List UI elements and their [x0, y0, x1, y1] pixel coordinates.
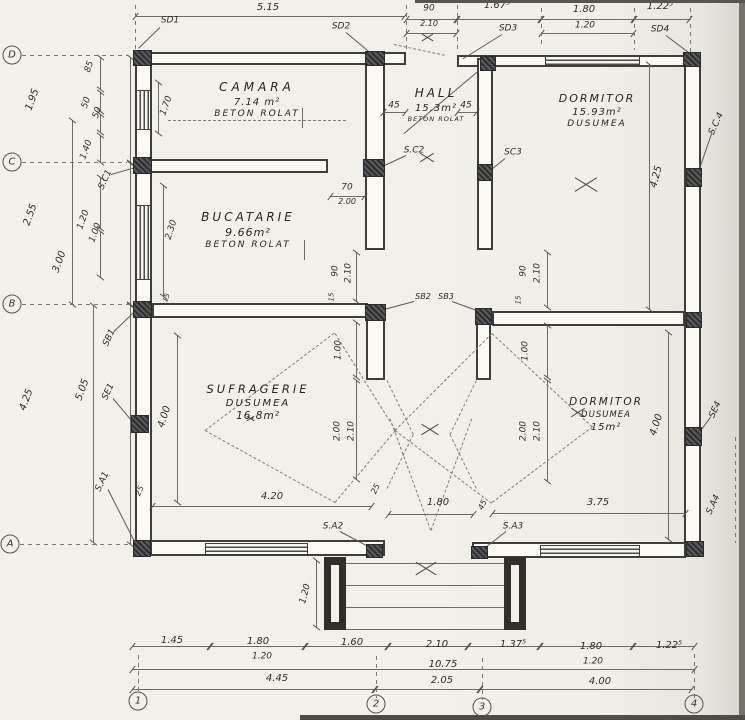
room-label-line: BETON ROLAT — [408, 115, 465, 123]
dim-2-00-buc: 2.00 — [338, 198, 356, 206]
room-label-line: HALL — [408, 86, 465, 102]
room-label-line: SUFRAGERIE — [206, 382, 309, 397]
room-label-line: 15.93m² — [559, 106, 636, 119]
dim-1-40: 1.40 — [79, 139, 94, 161]
wall-camara-bucatarie — [150, 159, 328, 173]
floor-plan-drawing: 5.15902.101.67⁵SD31.801.201.22⁵SD4SD1SD2… — [0, 0, 745, 720]
column-se4 — [685, 427, 702, 446]
room-label-line: DORMITOR — [559, 92, 636, 106]
dim-1-80-b1: 1.80 — [247, 637, 269, 647]
extension-line — [541, 8, 542, 48]
column-sd2 — [365, 51, 385, 66]
dim-4-20: 4.20 — [261, 492, 283, 502]
dim-2-00-suf: 2.00 — [334, 421, 343, 441]
room-label-sufragerie: SUFRAGERIEDUSUMEA16.8m² — [206, 382, 309, 424]
swing-dormitor — [395, 333, 493, 431]
dim-1-20-left: 1.20 — [76, 209, 91, 231]
scan-edge-right — [739, 0, 745, 720]
extension-line — [135, 5, 136, 49]
dim-2-10-hall-r: 2.10 — [534, 263, 543, 283]
swing-stub-left — [387, 380, 414, 434]
label-sd2: SD2 — [332, 23, 350, 32]
dim-line — [316, 560, 317, 628]
scan-edge-top — [415, 0, 745, 3]
x-mark-center — [420, 419, 440, 439]
dim-1-20-b2: 1.20 — [583, 658, 603, 667]
column-sb3 — [475, 308, 492, 325]
dim-line — [163, 185, 164, 297]
grid-marker-D: D — [3, 46, 22, 65]
label-sa3: S.A3 — [503, 523, 523, 532]
dim-2-10-hall-l: 2.10 — [345, 263, 354, 283]
stroke-bucatarie-note — [304, 240, 305, 260]
window-dormitor-top — [545, 56, 640, 66]
dim-90-hall-l: 90 — [332, 265, 341, 276]
grid-line-c — [22, 162, 127, 163]
dim-1-20-top: 1.20 — [575, 22, 595, 31]
grid-line-d — [22, 55, 127, 56]
dim-2-00-dorm: 2.00 — [520, 421, 529, 441]
dim-50-b: 50 — [92, 106, 104, 120]
label-sd3: SD3 — [499, 25, 517, 34]
dim-1-22-5-top: 1.22⁵ — [647, 2, 673, 12]
dim-line — [93, 305, 94, 543]
dim-2-55: 2.55 — [22, 203, 39, 227]
dim-70: 70 — [341, 184, 352, 193]
room-label-line: 16.8m² — [206, 410, 309, 424]
grid-marker-B: B — [3, 295, 22, 314]
dim-line — [100, 57, 101, 90]
grid-line-3 — [482, 658, 483, 700]
dim-line — [132, 669, 695, 670]
dim-3-00: 3.00 — [51, 250, 68, 274]
grid-marker-1: 1 — [129, 692, 148, 711]
label-sc1: S.C1 — [98, 169, 115, 191]
dim-3-75: 3.75 — [587, 498, 609, 508]
window-bucatarie-left — [136, 205, 151, 280]
porch-pillar-left-slot — [331, 565, 339, 622]
wall-right — [684, 55, 701, 556]
column-sc1 — [133, 157, 152, 174]
dim-1-00-hall-l: 1.00 — [335, 340, 344, 360]
column-sc3 — [477, 164, 493, 181]
swing-stub-right — [450, 380, 477, 434]
dim-4-25-left: 4.25 — [18, 388, 35, 412]
leader-line-sc2 — [382, 155, 406, 167]
dim-1-45: 1.45 — [161, 636, 183, 646]
dim-line — [634, 19, 690, 20]
dim-1-70: 1.70 — [159, 95, 174, 117]
wall-hall-right — [477, 58, 493, 250]
leader-line-sb2 — [383, 301, 414, 310]
dim-line — [457, 19, 541, 20]
dim-15-bwall: 15 — [162, 293, 172, 304]
column-sb4 — [686, 312, 702, 328]
swing-sufragerie — [335, 430, 396, 503]
dim-line — [356, 252, 357, 302]
label-sa2: S.A2 — [323, 523, 343, 532]
room-label-dormitor-1: DORMITOR15.93m²DUSUMEA — [559, 92, 636, 131]
dim-50-a: 50 — [81, 96, 93, 110]
dim-line — [668, 332, 669, 540]
label-sd1: SD1 — [161, 17, 179, 26]
grid-line-1 — [138, 655, 139, 693]
room-label-camara: CAMARA7.14 m²BETON ROLAT — [214, 80, 299, 120]
stroke-camara-note — [302, 108, 303, 128]
dim-1-00-hall-r: 1.00 — [522, 341, 531, 361]
dim-line — [100, 135, 101, 163]
column-sc4 — [686, 168, 702, 187]
room-label-line: 7.14 m² — [214, 96, 299, 109]
grid-marker-2: 2 — [367, 695, 386, 714]
dim-line — [541, 33, 634, 34]
dim-2-10-dorm: 2.10 — [534, 421, 543, 441]
grid-line-b — [22, 304, 132, 305]
column-sd3 — [480, 56, 496, 71]
dim-2-30: 2.30 — [165, 219, 180, 241]
dim-2-05: 2.05 — [431, 676, 453, 686]
dim-2-10-suf: 2.10 — [348, 421, 357, 441]
leader-line-sd1 — [138, 27, 160, 49]
dim-line — [130, 57, 131, 163]
column-sb1 — [133, 301, 152, 318]
dim-line — [547, 380, 548, 482]
label-sd4: SD4 — [651, 26, 669, 35]
room-label-line: BUCATARIE — [201, 210, 295, 226]
dim-line — [132, 646, 210, 647]
dim-4-00-dorm: 4.00 — [649, 413, 665, 437]
grid-marker-A: A — [1, 535, 20, 554]
room-label-line: 15.3m² — [408, 102, 465, 115]
dim-line — [492, 513, 686, 514]
extension-line — [406, 5, 407, 50]
grid-marker-C: C — [3, 153, 22, 172]
extension-line — [457, 5, 458, 53]
extension-line — [634, 8, 635, 50]
grid-line-a — [20, 544, 132, 545]
dim-5-15: 5.15 — [257, 3, 279, 13]
dim-line — [158, 82, 159, 134]
wall-row-b-left — [152, 303, 368, 318]
dim-4-00-b: 4.00 — [589, 677, 611, 687]
dim-4-45: 4.45 — [266, 674, 288, 684]
label-sb2: SB2 — [415, 293, 431, 301]
wall-row-b-right — [492, 311, 685, 326]
label-sc4: S.C.4 — [708, 111, 726, 136]
room-label-line: 9.66m² — [201, 226, 295, 240]
x-mark-dormitor1 — [573, 172, 599, 196]
window-camara-left — [136, 90, 151, 130]
column-sa1 — [133, 540, 151, 557]
dim-4-00-suf: 4.00 — [157, 405, 173, 429]
room-label-line: DUSUMEA — [559, 119, 636, 131]
dim-15-l: 15 — [329, 293, 336, 302]
dim-15-r: 15 — [516, 296, 523, 305]
dim-5-05: 5.05 — [74, 378, 91, 402]
dim-90-top: 90 — [423, 5, 434, 14]
wall-stub-left — [366, 318, 385, 380]
leader-line-sd2 — [346, 32, 370, 53]
porch-pillar-right-slot — [511, 565, 519, 622]
room-label-bucatarie: BUCATARIE9.66m²BETON ROLAT — [201, 210, 295, 252]
dim-1-60: 1.60 — [341, 638, 363, 648]
swing-stub-left — [387, 434, 414, 488]
dim-line-right-margin — [735, 437, 736, 543]
room-label-line: 15m² — [569, 421, 643, 434]
x-mark-porch — [414, 558, 438, 578]
dim-10-75: 10.75 — [429, 660, 458, 670]
dim-line — [375, 689, 480, 690]
room-label-line: DUSUMEA — [569, 410, 643, 421]
dim-line — [100, 231, 101, 278]
dim-45-left: 45 — [388, 102, 399, 111]
wall-hall-left — [365, 58, 385, 250]
dim-1-80-top: 1.80 — [573, 5, 595, 15]
column-sd1 — [133, 50, 152, 66]
dim-line — [547, 252, 548, 308]
column-sb2 — [365, 304, 386, 321]
dim-45-a3: 45 — [477, 499, 489, 512]
dim-1-80-b2: 1.80 — [580, 642, 602, 652]
dim-4-25-dorm: 4.25 — [649, 165, 664, 189]
room-label-dormitor-2: DORMITORDUSUMEA15m² — [569, 396, 643, 434]
dim-line — [388, 514, 474, 515]
label-sb3: SB3 — [438, 293, 454, 301]
dim-2-10-b: 2.10 — [426, 640, 448, 650]
grid-line-4 — [694, 654, 695, 698]
dim-1-80-door: 1.80 — [427, 498, 449, 508]
dim-90-hall-r: 90 — [520, 265, 529, 276]
column-se1 — [131, 415, 149, 433]
dim-line — [177, 335, 178, 503]
x-mark-top-door — [421, 30, 434, 43]
dim-line — [152, 506, 372, 507]
column-sa2 — [366, 544, 383, 558]
room-label-line: DORMITOR — [569, 396, 643, 410]
dim-line — [383, 112, 406, 113]
label-sc2: S.C2 — [404, 147, 425, 156]
wall-stub-right — [476, 323, 491, 380]
column-sc2 — [363, 159, 385, 177]
dim-line — [72, 120, 73, 305]
dim-2-10-top: 2.10 — [420, 20, 438, 28]
dim-1-20-porch: 1.20 — [299, 583, 313, 605]
label-se4: SE4 — [708, 400, 723, 419]
label-sc3: SC3 — [504, 149, 522, 158]
room-label-line: BETON ROLAT — [214, 109, 299, 121]
grid-marker-4: 4 — [685, 695, 704, 714]
grid-marker-3: 3 — [473, 698, 492, 717]
dim-1-22-5-b: 1.22⁵ — [656, 641, 682, 651]
porch-step-line — [324, 629, 526, 630]
window-dormitor-bottom — [540, 545, 640, 557]
label-sa4: S.A4 — [706, 494, 723, 516]
scan-edge-bottom — [300, 715, 745, 720]
room-label-hall: HALL15.3m²BETON ROLAT — [408, 86, 465, 123]
grid-line-2 — [376, 656, 377, 698]
label-sb1: SB1 — [102, 328, 118, 348]
room-label-line: BETON ROLAT — [201, 240, 295, 252]
porch-step-line — [346, 607, 504, 608]
dim-1-37-5: 1.37⁵ — [500, 640, 526, 650]
column-sa4 — [686, 541, 704, 557]
dim-1-95: 1.95 — [24, 88, 41, 112]
room-label-line: DUSUMEA — [206, 397, 309, 410]
room-label-line: CAMARA — [214, 80, 299, 96]
dim-line — [649, 64, 650, 310]
column-sd4 — [683, 52, 701, 67]
dim-line — [480, 689, 692, 690]
porch-step-line — [346, 585, 504, 586]
window-sufragerie-bottom — [205, 543, 308, 555]
dim-25-b: 25 — [370, 483, 382, 496]
dim-85: 85 — [84, 60, 96, 74]
dim-line — [130, 163, 131, 305]
dim-line — [547, 325, 548, 378]
extension-line — [690, 8, 691, 52]
leader-line-sa1 — [108, 489, 137, 544]
dim-1-20-b1: 1.20 — [252, 653, 272, 662]
dim-line — [132, 689, 375, 690]
column-sa3 — [471, 546, 488, 559]
